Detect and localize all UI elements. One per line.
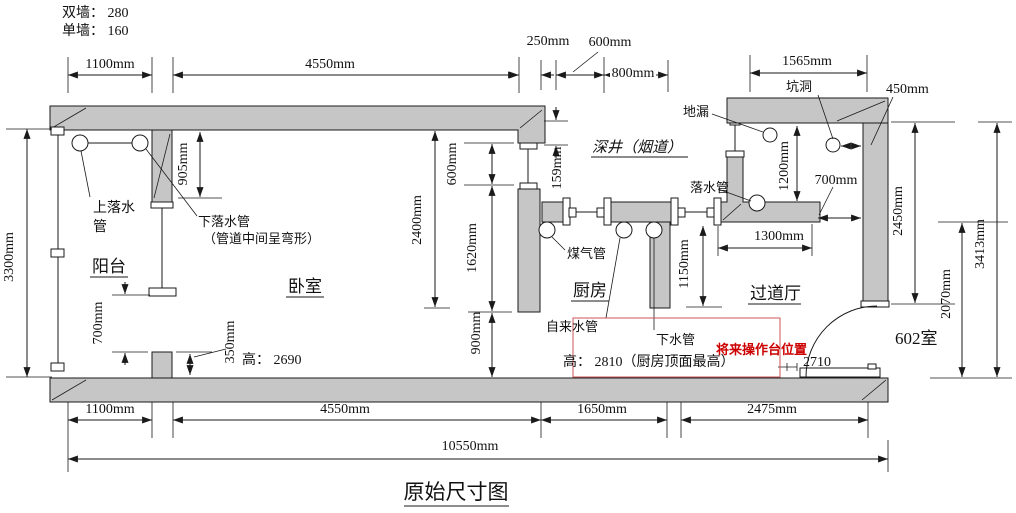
label-pit: 坑洞 — [786, 79, 812, 94]
dim-bottom-4550: 4550mm — [320, 402, 370, 417]
height-bedroom: 高： 2690 — [242, 351, 302, 368]
note-double-wall: 双墙： 280 — [62, 5, 129, 21]
dim-top-600: 600mm — [589, 35, 632, 50]
drain-pipe-icon — [749, 195, 765, 211]
sewer-pipe-icon — [646, 222, 662, 238]
dim-top-1100: 1100mm — [85, 57, 134, 72]
label-sewer: 下水管 — [656, 332, 695, 347]
height-kitchen: 高： 2810（厨房顶面最高） — [563, 353, 735, 370]
dim-1300: 1300mm — [754, 229, 804, 244]
dim-1620: 1620mm — [465, 223, 480, 273]
label-lower-drain-1: 下落水管 — [198, 214, 250, 229]
room-602: 602室 — [895, 329, 938, 348]
wall-l-shape — [721, 157, 820, 222]
dim-bottom-2475: 2475mm — [747, 402, 797, 417]
room-shaft: 深井（烟道） — [592, 139, 682, 156]
label-upper-drain-2: 管 — [93, 219, 107, 235]
wall-bottom — [50, 378, 888, 402]
door-width-2710: 2710 — [803, 355, 831, 370]
wall-right — [863, 123, 888, 302]
dim-600-right: 600mm — [445, 143, 460, 186]
dim-3413: 3413mm — [973, 219, 988, 269]
floor-plan-canvas: 双墙： 280 单墙： 160 1100mm 4550mm 250mm 600m… — [0, 0, 1016, 513]
room-hallway: 过道厅 — [750, 284, 801, 303]
room-bedroom: 卧室 — [288, 277, 322, 296]
dim-450: 450mm — [886, 82, 929, 97]
wall-kitchen-left — [518, 189, 540, 312]
wall-stub-bottom — [152, 352, 172, 378]
dim-2450: 2450mm — [891, 186, 906, 236]
floor-drain-icon — [763, 128, 777, 142]
future-countertop-label: 将来操作台位置 — [716, 342, 807, 357]
pit-hole-icon — [826, 138, 840, 152]
room-kitchen: 厨房 — [573, 281, 607, 300]
upper-drain-pipe-icon — [72, 135, 88, 151]
label-gas-pipe: 煤气管 — [567, 246, 606, 261]
dim-2400: 2400mm — [410, 195, 425, 245]
wall-top-right — [727, 98, 888, 123]
label-lower-drain-2: （管道中间呈弯形） — [203, 231, 320, 246]
dim-10550: 10550mm — [442, 439, 499, 454]
dim-159: 159mm — [550, 147, 565, 190]
label-floor-drain: 地漏 — [683, 104, 709, 119]
drawing-title: 原始尺寸图 — [404, 480, 509, 504]
dim-bottom-1100: 1100mm — [85, 402, 134, 417]
gas-pipe-icon — [539, 222, 555, 238]
dim-bottom-1650: 1650mm — [577, 402, 627, 417]
dim-700-right: 700mm — [815, 173, 858, 188]
label-upper-drain-1: 上落水 — [93, 200, 135, 216]
label-tap-water: 自来水管 — [546, 319, 598, 334]
dim-top-4550: 4550mm — [305, 57, 355, 72]
dim-top-800: 800mm — [612, 66, 655, 81]
dim-left-3300: 3300mm — [2, 232, 17, 282]
wall-top-left — [50, 106, 545, 143]
floor-plan-page: 双墙： 280 单墙： 160 1100mm 4550mm 250mm 600m… — [0, 0, 1016, 513]
dim-905: 905mm — [176, 143, 191, 186]
dim-1150: 1150mm — [677, 239, 692, 288]
dim-700-balcony: 700mm — [91, 302, 106, 345]
dim-350: 350mm — [223, 321, 238, 364]
note-single-wall: 单墙： 160 — [62, 23, 129, 39]
lower-drain-pipe-icon — [132, 135, 148, 151]
dim-2070: 2070mm — [939, 269, 954, 319]
room-balcony: 阳台 — [92, 257, 126, 276]
dim-900: 900mm — [469, 312, 484, 355]
text-labels: 双墙： 280 单墙： 160 1100mm 4550mm 250mm 600m… — [2, 5, 988, 506]
dim-1200: 1200mm — [777, 141, 792, 191]
label-drain-pipe: 落水管 — [690, 180, 729, 195]
tap-water-pipe-icon — [616, 222, 632, 238]
dim-top-1565: 1565mm — [782, 54, 832, 69]
dim-top-250: 250mm — [527, 34, 570, 49]
